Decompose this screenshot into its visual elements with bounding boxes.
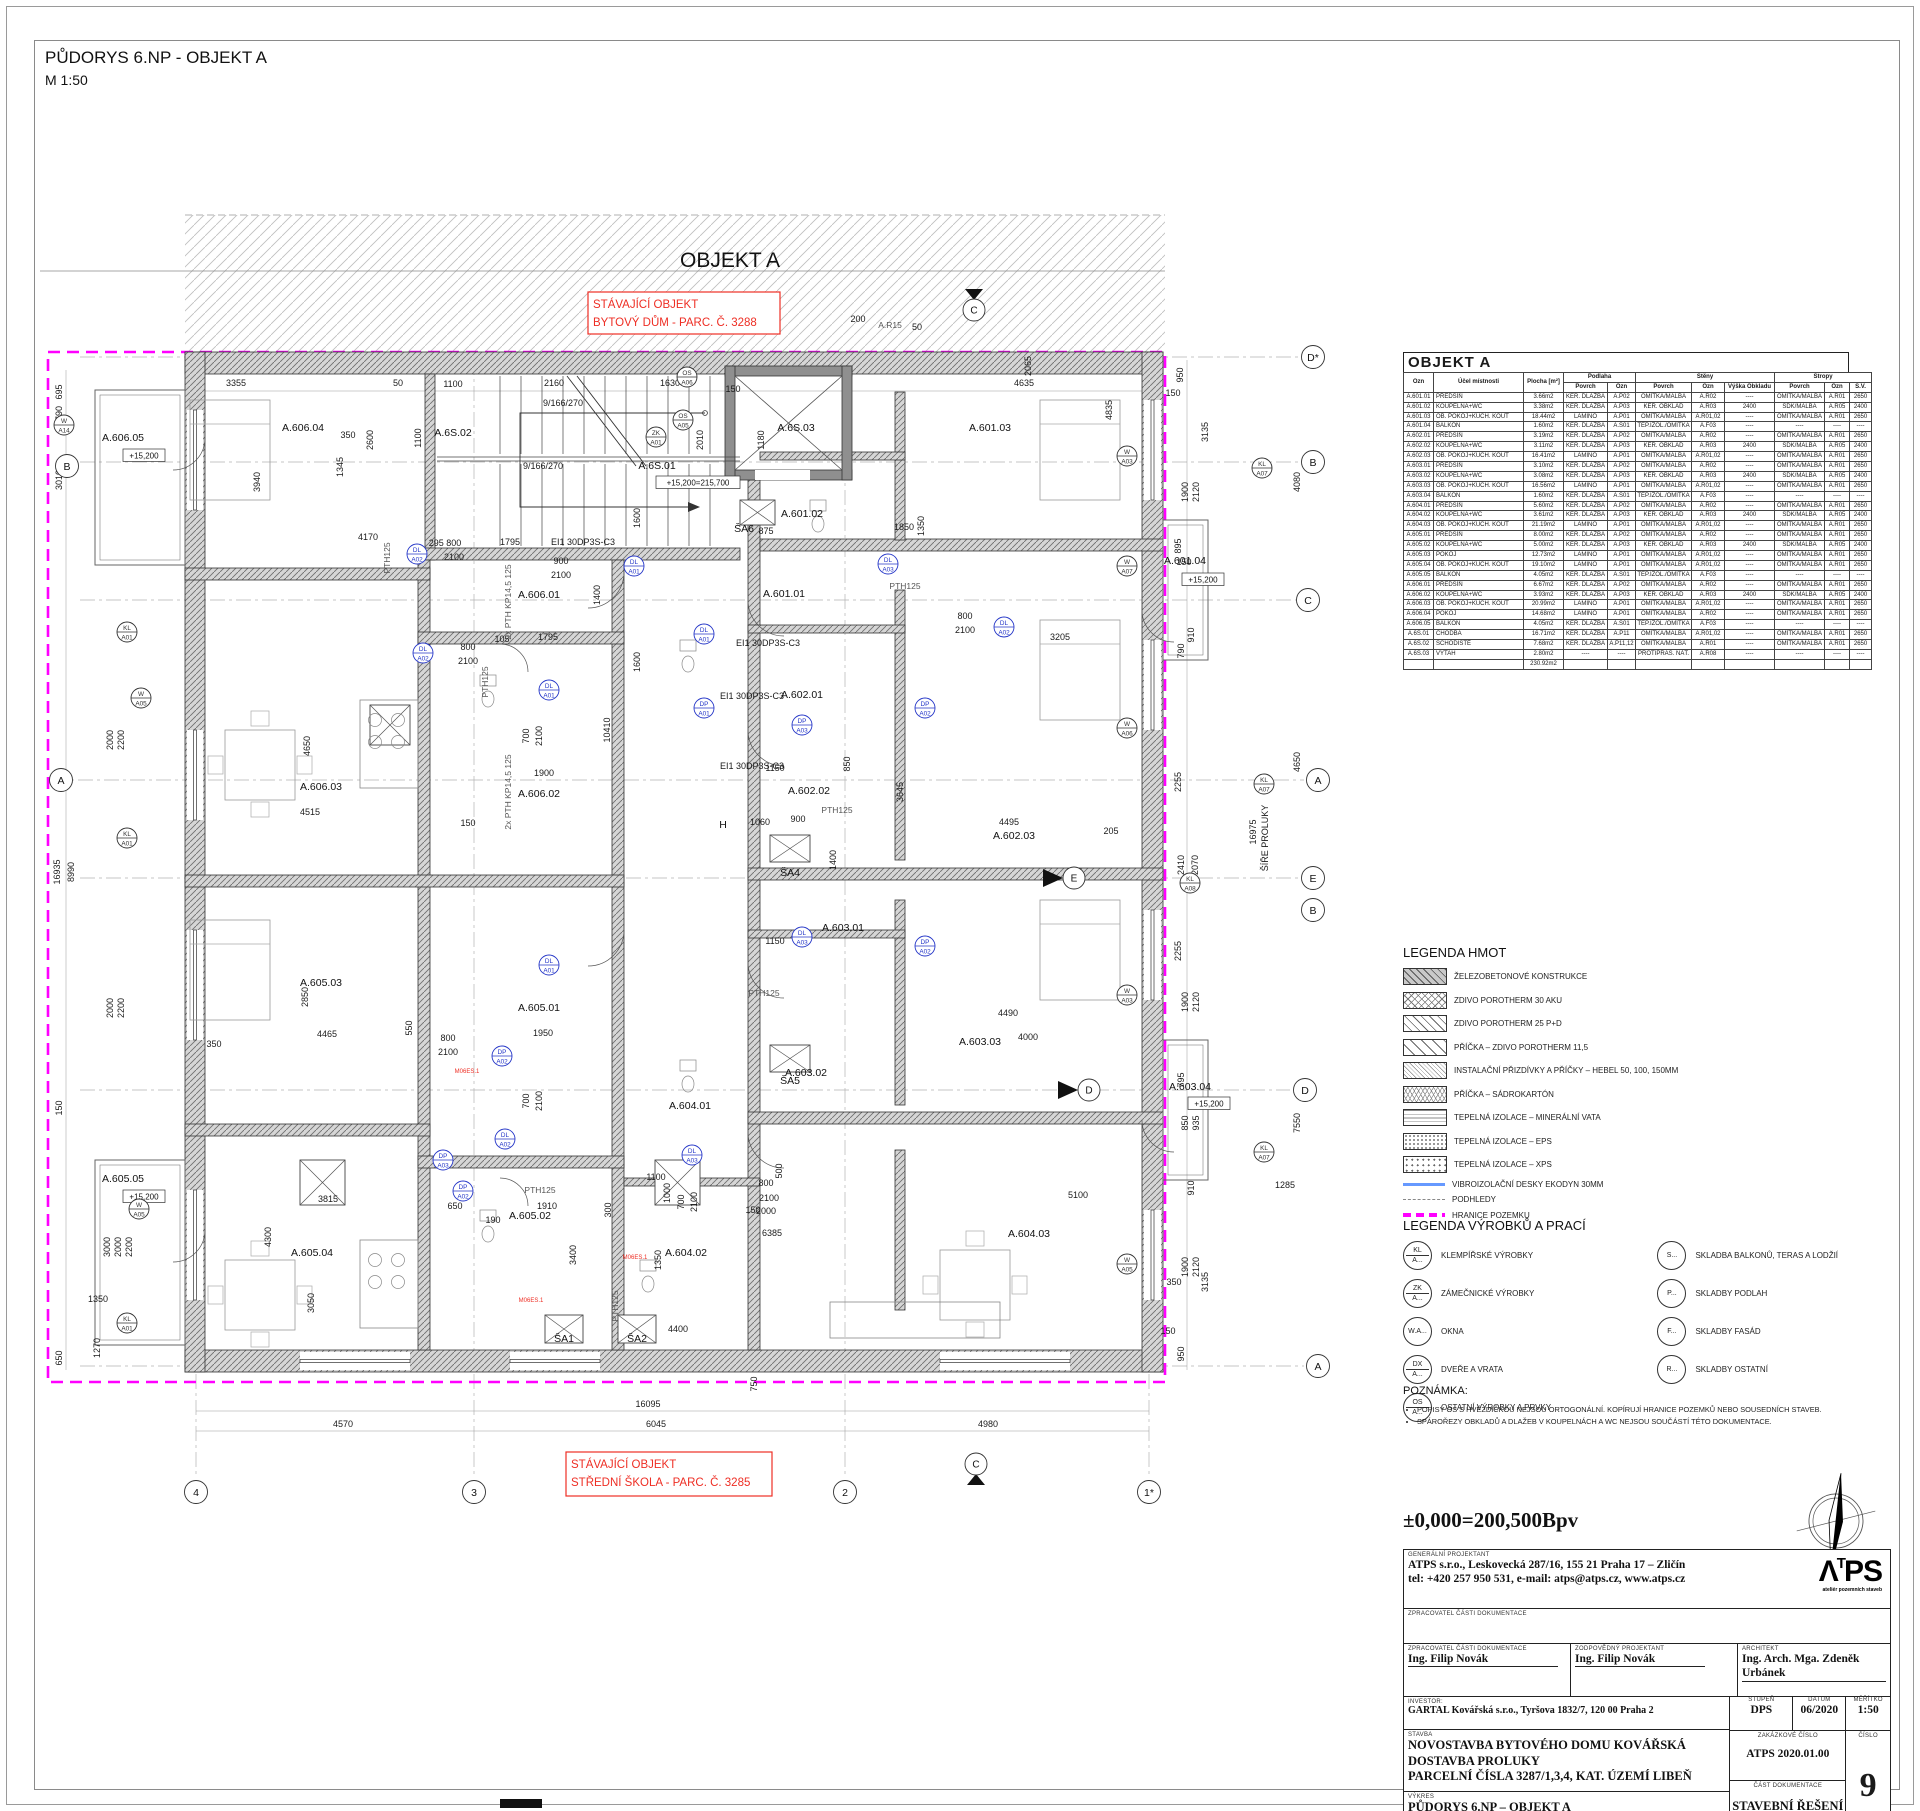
room-label: A.601.04 [1164, 555, 1206, 567]
dim-label: 205 [1103, 826, 1118, 836]
svg-text:DP: DP [921, 701, 930, 708]
svg-text:A03: A03 [1121, 458, 1133, 465]
room-label: A.606.01 [518, 589, 560, 601]
room-label: A.602.01 [781, 689, 823, 701]
svg-text:A03: A03 [882, 566, 894, 573]
table-row: A.605.01PŘEDSÍŇ8.00m2KER. DLAŽBAA.P02OMÍ… [1404, 531, 1872, 541]
grid-bubble-B: B [1302, 899, 1325, 922]
dim-label: 2100 [534, 1091, 544, 1111]
dim-label: 7550 [1292, 1113, 1302, 1133]
product-marker: WA03 [1117, 446, 1137, 466]
svg-text:KL: KL [1260, 1145, 1268, 1152]
plan-text: 2x PTH KP14,5 125 [503, 754, 513, 829]
dim-label: 150 [460, 818, 475, 828]
product-marker: OSA05 [673, 410, 693, 430]
plan-text: A.R15 [878, 320, 902, 330]
dim-label: 800 [758, 1178, 773, 1188]
legend-item: PODHLEDY [1403, 1195, 1903, 1204]
responsible-designer-value: Ing. Filip Novák [1575, 1652, 1705, 1667]
dim-label: 2100 [689, 1192, 699, 1212]
dim-label: 2100 [438, 1047, 458, 1057]
dimension-chains [66, 360, 1187, 1431]
dim-label: 1350 [916, 516, 926, 536]
svg-text:DL: DL [545, 958, 554, 965]
svg-text:A07: A07 [1256, 470, 1268, 477]
marker-symbol-icon: R... [1657, 1355, 1686, 1384]
dim-label: 2160 [544, 378, 564, 388]
svg-text:A02: A02 [919, 948, 931, 955]
table-row: A.601.02KOUPELNA+WC3.38m2KER. DLAŽBAA.P0… [1404, 402, 1872, 412]
dim-label: 1150 [765, 936, 784, 946]
dim-label: 3940 [252, 472, 262, 492]
section-arrows: CCED [963, 289, 1100, 1485]
grid-bubble-3: 3 [463, 1481, 486, 1504]
note-bullet: POPISY OS S HVĚZDIČKOU NEJSOU ORTOGONÁLN… [1417, 1405, 1908, 1414]
svg-text:A01: A01 [543, 967, 555, 974]
col-ucel: Účel místnosti [1434, 373, 1524, 393]
plan-text: PTH125 [889, 581, 920, 591]
dim-label: 9/166/270 [543, 398, 583, 408]
project-line1: NOVOSTAVBA BYTOVÉHO DOMU KOVÁŘSKÁ [1408, 1738, 1725, 1754]
room-label: A.604.02 [665, 1247, 707, 1259]
room-label: ŠA4 [780, 866, 800, 879]
svg-text:DL: DL [798, 930, 807, 937]
legend-item: ZDIVO POROTHERM 30 AKU [1403, 992, 1903, 1009]
svg-text:A03: A03 [796, 939, 808, 946]
dim-label: 1000 [662, 1183, 672, 1203]
order-number-value: ATPS 2020.01.00 [1730, 1747, 1845, 1761]
room-label: A.6S.01 [638, 460, 676, 472]
svg-text:W: W [138, 691, 145, 698]
svg-text:DL: DL [545, 683, 554, 690]
door-marker: DPA02 [915, 698, 935, 718]
svg-text:A05: A05 [1121, 1266, 1133, 1273]
svg-text:A07: A07 [1258, 786, 1270, 793]
svg-text:A06: A06 [681, 379, 693, 386]
dim-label: EI1 30DP3S-C3 [720, 691, 784, 701]
legend-product-item: R...SKLADBY OSTATNÍ [1657, 1355, 1902, 1384]
room-label: A.606.02 [518, 788, 560, 800]
table-row: A.601.01PŘEDSÍŇ3.66m2KER. DLAŽBAA.P02OMÍ… [1404, 392, 1872, 402]
sw-eps-swatch [1403, 1133, 1447, 1150]
note-block: POZNÁMKA: POPISY OS S HVĚZDIČKOU NEJSOU … [1403, 1385, 1908, 1429]
legend-item: TEPELNÁ IZOLACE – XPS [1403, 1156, 1903, 1173]
svg-text:A02: A02 [457, 1193, 469, 1200]
room-label: ŠA1 [554, 1332, 574, 1345]
marker-symbol-icon: S... [1657, 1241, 1686, 1270]
dim-label: 1600 [632, 508, 642, 528]
dim-label: 350 [1166, 1277, 1181, 1287]
room-label: A.603.01 [822, 922, 864, 934]
svg-text:OS: OS [678, 413, 687, 420]
grid-bubble-1: 1* [1138, 1481, 1161, 1504]
door-marker: DPA02 [915, 936, 935, 956]
sw-vata-swatch [1403, 1109, 1447, 1126]
room-label: A.6S.03 [777, 422, 815, 434]
svg-text:DL: DL [688, 1148, 697, 1155]
dim-label: 150 [1165, 388, 1180, 398]
dim-label: 650 [447, 1201, 462, 1211]
plan-text: M06ES.1 [623, 1255, 648, 1261]
svg-text:A01: A01 [121, 840, 133, 847]
svg-text:OS: OS [682, 370, 691, 377]
room-label: A.605.04 [291, 1247, 333, 1259]
col-stropy: Stropy [1775, 373, 1872, 383]
table-row: A.603.03OB. POKOJ+KUCH. KOUT16.56m2LAMIN… [1404, 481, 1872, 491]
dim-label: 190 [485, 1215, 500, 1225]
dim-label: 2200 [124, 1237, 134, 1257]
product-marker: KLA01 [117, 622, 137, 642]
table-row: A.606.01PŘEDSÍŇ6.67m2KER. DLAŽBAA.P02OMÍ… [1404, 580, 1872, 590]
dim-label: 300 [603, 1202, 613, 1217]
section-arrow-D: D [1058, 1079, 1100, 1101]
doc-section-value: STAVEBNÍ ŘEŠENÍ [1730, 1799, 1845, 1811]
dim-label: 695 [54, 384, 64, 399]
product-marker: WA03 [1117, 985, 1137, 1005]
dim-label: 150 [1160, 1326, 1175, 1336]
dim-label: 4515 [300, 807, 320, 817]
room-label: A.605.02 [509, 1210, 551, 1222]
dim-label: 3135 [1200, 422, 1210, 442]
product-marker: KLA07 [1254, 1142, 1274, 1162]
table-row: A.6S.01CHODBA16.71m2KER. DLAŽBAA.P11OMÍT… [1404, 630, 1872, 640]
svg-text:DL: DL [700, 627, 709, 634]
sheet-number-value: 9 [1846, 1769, 1890, 1803]
plan-text: PTH125 [382, 542, 392, 573]
dim-label: 1900 [534, 768, 554, 778]
sw-lblue-swatch [1403, 1183, 1445, 1186]
legend-materials: LEGENDA HMOT ŽELEZOBETONOVÉ KONSTRUKCEZD… [1403, 945, 1903, 1226]
svg-text:W: W [1124, 449, 1131, 456]
dim-label: 2850 [300, 987, 310, 1007]
datum-level-line: ±0,000=200,500Bpv [1403, 1508, 1578, 1533]
door-marker: DLA02 [413, 643, 433, 663]
dim-label: 3645 [895, 782, 905, 802]
dim-label: 350 [340, 430, 355, 440]
dim-label: 3050 [306, 1293, 316, 1313]
room-label: A.603.04 [1169, 1081, 1211, 1093]
col-podlaha: Podlaha [1564, 373, 1636, 383]
room-label: A.606.04 [282, 422, 324, 434]
product-marker: KLA08 [1180, 873, 1200, 893]
svg-text:A: A [57, 775, 64, 787]
dim-label: 790 [1176, 643, 1186, 658]
room-label: A.601.03 [969, 422, 1011, 434]
dim-label: 6385 [762, 1228, 782, 1238]
dim-label: 4000 [1018, 1032, 1038, 1042]
svg-text:DP: DP [798, 718, 807, 725]
room-label: H [719, 819, 727, 831]
dim-label: 4570 [333, 1419, 353, 1429]
dim-label: 2000 [756, 1206, 776, 1216]
svg-text:DP: DP [439, 1153, 448, 1160]
svg-text:A07: A07 [1121, 568, 1133, 575]
dim-label: 1345 [335, 457, 345, 477]
table-row: A.604.03OB. POKOJ+KUCH. KOUT21.19m2LAMIN… [1404, 521, 1872, 531]
dim-label: 2120 [1191, 992, 1201, 1012]
property-boundary [48, 352, 1165, 1382]
marker-symbol-icon: KLA... [1403, 1241, 1432, 1270]
dim-label: 2065 [1023, 356, 1033, 376]
svg-text:DL: DL [1000, 620, 1009, 627]
marker-symbol-icon: P... [1657, 1279, 1686, 1308]
table-row: A.605.04OB. POKOJ+KUCH. KOUT19.10m2LAMIN… [1404, 560, 1872, 570]
product-marker: WA07 [1117, 556, 1137, 576]
dim-label: 3205 [1050, 632, 1070, 642]
doc-part-author-label: ZPRACOVATEL ČÁSTI DOKUMENTACE [1408, 1611, 1886, 1617]
dim-label: 1795 [538, 632, 558, 642]
svg-text:W: W [136, 1202, 143, 1209]
svg-text:A05: A05 [133, 1211, 145, 1218]
legend-product-item: KLA...KLEMPÍŘSKÉ VÝROBKY [1403, 1241, 1653, 1270]
dim-label: 5100 [1068, 1190, 1088, 1200]
table-row: A.601.03OB. POKOJ+KUCH. KOUT18.44m2LAMIN… [1404, 412, 1872, 422]
grid-bubble-2: 2 [834, 1481, 857, 1504]
project-line3: PARCELNÍ ČÍSLA 3287/1,3,4, KAT. ÚZEMÍ LI… [1408, 1769, 1725, 1785]
svg-text:DP: DP [498, 1049, 507, 1056]
atps-logo: ΛTPS ateliér pozemních staveb [1819, 1556, 1882, 1593]
sw-sdk-swatch [1403, 1086, 1447, 1103]
svg-text:DL: DL [413, 547, 422, 554]
plan-text: M06ES.1 [455, 1069, 480, 1075]
dim-label: 4835 [1104, 400, 1114, 420]
dim-label: 10410 [602, 717, 612, 742]
dim-label: 2255 [1173, 772, 1183, 792]
svg-text:B: B [1309, 457, 1316, 469]
dim-label: 4465 [317, 1029, 337, 1039]
dim-label: 850 [1180, 1115, 1190, 1130]
product-marker: OSA06 [677, 367, 697, 387]
dim-label: 1900 [1180, 1257, 1190, 1277]
room-label: ŠA6 [734, 522, 754, 535]
svg-text:A: A [1314, 1361, 1321, 1373]
legend-product-item: S...SKLADBA BALKONŮ, TERAS A LODŽIÍ [1657, 1241, 1902, 1270]
legend-product-item: DXA...DVEŘE A VRATA [1403, 1355, 1653, 1384]
dim-label: 4980 [978, 1419, 998, 1429]
svg-text:D: D [1301, 1085, 1309, 1097]
plan-text: PTH125 [480, 666, 490, 697]
plan-text: PTH125 [524, 1185, 555, 1195]
svg-text:A03: A03 [437, 1162, 449, 1169]
balconies [95, 390, 1208, 1345]
svg-text:C: C [1304, 595, 1312, 607]
room-table-title: OBJEKT A [1403, 352, 1849, 372]
svg-text:A07: A07 [1258, 1154, 1270, 1161]
svg-text:D*: D* [1307, 352, 1319, 364]
plan-text: 2x PTH KP14,5 125 [503, 564, 513, 639]
svg-text:DL: DL [501, 1132, 510, 1139]
product-marker: WA14 [54, 415, 74, 435]
dim-label: 1100 [443, 379, 462, 389]
dim-label: 150 [725, 384, 740, 394]
dim-label: 1100 [413, 428, 423, 447]
dim-label: 900 [790, 814, 805, 824]
room-label: A.603.03 [959, 1036, 1001, 1048]
dim-label: 350 [206, 1039, 221, 1049]
dim-label: 4635 [1014, 378, 1034, 388]
dim-label: 800 [460, 642, 475, 652]
grid-bubble-4: 4 [185, 1481, 208, 1504]
dim-label: 2255 [1173, 941, 1183, 961]
door-marker: DLA03 [792, 927, 812, 947]
level-mark: +15,200 [1188, 576, 1218, 585]
grid-bubble-B: B [56, 455, 79, 478]
sw-lmag-swatch [1403, 1213, 1445, 1217]
dim-label: 3400 [568, 1245, 578, 1265]
legend-materials-title: LEGENDA HMOT [1403, 945, 1903, 960]
red-annotation-text: STÁVAJÍCÍ OBJEKT [593, 298, 698, 311]
dim-label: 1350 [653, 1250, 663, 1270]
door-marker: DLA01 [539, 955, 559, 975]
title-block: GENERÁLNÍ PROJEKTANT ATPS s.r.o., Leskov… [1403, 1549, 1891, 1811]
svg-text:W: W [61, 418, 68, 425]
dim-label: 910 [1186, 627, 1196, 642]
svg-text:E: E [1071, 874, 1078, 885]
dim-label: 16935 [52, 859, 62, 884]
svg-text:4: 4 [193, 1487, 199, 1499]
product-marker: KLA07 [1252, 458, 1272, 478]
room-label: A.6S.02 [434, 427, 472, 439]
dim-label: 2010 [695, 430, 705, 450]
grid-bubble-A: A [1307, 769, 1330, 792]
door-marker: DLA02 [994, 617, 1014, 637]
scale-value: 1:50 [1846, 1703, 1890, 1717]
product-marker: WA06 [1117, 718, 1137, 738]
svg-text:E: E [1309, 873, 1316, 885]
svg-text:KL: KL [123, 625, 131, 632]
svg-text:A08: A08 [1184, 885, 1196, 892]
table-row: A.605.05BALKON4.05m2KER. DLAŽBAA.S01TEP.… [1404, 570, 1872, 580]
dim-label: 2000 [105, 998, 115, 1018]
note-bullet: SPÁROŘEZY OBKLADŮ A DLAŽEB V KOUPELNÁCH … [1417, 1417, 1908, 1426]
room-label: ŠA5 [780, 1074, 800, 1087]
table-row: A.604.01PŘEDSÍŇ5.60m2KER. DLAŽBAA.P02OMÍ… [1404, 501, 1872, 511]
svg-text:A03: A03 [796, 727, 808, 734]
level-mark: +15,200 [1194, 1100, 1224, 1109]
dim-label: 2410 [1176, 855, 1186, 875]
general-designer-line1: ATPS s.r.o., Leskovecká 287/16, 155 21 P… [1408, 1558, 1886, 1572]
section-arrow-C: C [965, 1453, 987, 1485]
dim-label: 3000 [102, 1237, 112, 1257]
sw-zb-swatch [1403, 968, 1447, 985]
svg-text:W: W [1124, 559, 1131, 566]
grid-bubble-A: A [1307, 1355, 1330, 1378]
dim-label: 1400 [828, 850, 838, 870]
plan-object-title: OBJEKT A [680, 249, 780, 272]
svg-text:KL: KL [1260, 777, 1268, 784]
floor-plan: OBJEKT A STÁVAJÍCÍ OBJEKTBYTOVÝ DŮM - PA… [40, 170, 1330, 1530]
dim-label: 800 [957, 611, 972, 621]
svg-text:A14: A14 [58, 427, 70, 434]
walls [185, 352, 1163, 1372]
col-plocha: Plocha [m²] [1524, 373, 1564, 393]
product-marker: WA05 [131, 688, 151, 708]
dim-label: 950 [1175, 367, 1185, 382]
dim-label: 2100 [534, 726, 544, 746]
marker-symbol-icon: W.A... [1403, 1317, 1432, 1346]
red-annotation-text: STŘEDNÍ ŠKOLA - PARC. Č. 3285 [571, 1476, 750, 1489]
dim-label: 2120 [1191, 1257, 1201, 1277]
dim-label: 2100 [458, 656, 478, 666]
dim-label: 700 [676, 1194, 686, 1209]
sw-p30-swatch [1403, 992, 1447, 1009]
sw-p25-swatch [1403, 1015, 1447, 1032]
svg-text:DL: DL [884, 557, 893, 564]
product-marker: WA05 [129, 1199, 149, 1219]
svg-text:W: W [1124, 988, 1131, 995]
dim-label: 4650 [1292, 752, 1302, 772]
svg-text:DP: DP [459, 1184, 468, 1191]
svg-text:A03: A03 [686, 1157, 698, 1164]
dim-label: 1900 [1180, 482, 1190, 502]
dim-label: ŠÍŘE PROLUKY [1260, 805, 1270, 872]
drawing-sheet: PŮDORYS 6.NP - OBJEKT A M 1:50 [0, 0, 1920, 1811]
table-row: A.604.02KOUPELNA+WC3.61m2KER. DLAŽBAA.P0… [1404, 511, 1872, 521]
dim-label: 895 [1173, 538, 1183, 553]
dim-label: 3815 [318, 1194, 338, 1204]
svg-text:2: 2 [842, 1487, 848, 1499]
svg-text:1*: 1* [1144, 1487, 1154, 1499]
legend-product-item: P...SKLADBY PODLAH [1657, 1279, 1902, 1308]
page-title: PŮDORYS 6.NP - OBJEKT A [45, 48, 267, 68]
marker-symbol-icon: ZKA... [1403, 1279, 1432, 1308]
dim-label: 1150 [765, 763, 784, 773]
plan-text: M06ES.1 [519, 1298, 544, 1304]
legend-item: VIBROIZOLAČNÍ DESKY EKODYN 30MM [1403, 1180, 1903, 1189]
legend-product-item: W.A...OKNA [1403, 1317, 1653, 1346]
svg-text:D: D [1085, 1086, 1092, 1097]
dim-label: 295 800 [429, 538, 462, 548]
svg-text:A05: A05 [677, 422, 689, 429]
dim-label: 50 [393, 378, 403, 388]
door-marker: DLA02 [495, 1129, 515, 1149]
plan-text: PTH125 [821, 805, 852, 815]
dim-label: 1350 [88, 1294, 108, 1304]
svg-text:A06: A06 [1121, 730, 1133, 737]
dim-label: 4650 [302, 736, 312, 756]
dim-label: 150 [54, 1100, 64, 1115]
dim-label: 2000 [113, 1237, 123, 1257]
dim-label: 550 [404, 1020, 414, 1035]
legend-products-title: LEGENDA VÝROBKŮ A PRACÍ [1403, 1218, 1908, 1233]
product-marker: KLA01 [117, 1313, 137, 1333]
dim-label: 2100 [444, 552, 464, 562]
col-steny: Stěny [1636, 373, 1775, 383]
architect-value: Ing. Arch. Mga. Zdeněk Urbánek [1742, 1652, 1886, 1682]
dim-label: 1285 [1275, 1180, 1295, 1190]
dim-label: 1600 [632, 652, 642, 672]
dim-label: 1180 [756, 430, 766, 449]
general-designer-line2: tel: +420 257 950 531, e-mail: atps@atps… [1408, 1572, 1886, 1586]
room-label: A.604.01 [669, 1100, 711, 1112]
dim-label: 6045 [646, 1419, 666, 1429]
legend-item: ŽELEZOBETONOVÉ KONSTRUKCE [1403, 968, 1903, 985]
grid-bubble-E: E [1302, 867, 1325, 890]
grid-bubble-C: C [1297, 589, 1320, 612]
table-row: A.605.02KOUPELNA+WC5.00m2KER. DLAŽBAA.P0… [1404, 541, 1872, 551]
svg-text:KL: KL [1186, 876, 1194, 883]
table-row: A.602.02KOUPELNA+WC3.11m2KER. DLAŽBAA.P0… [1404, 442, 1872, 452]
dim-label: 850 [842, 756, 852, 771]
svg-text:C: C [972, 1460, 979, 1471]
sheet-fold-mark [500, 1799, 542, 1808]
dim-label: 9/166/270 [523, 461, 563, 471]
room-label: A.605.01 [518, 1002, 560, 1014]
door-marker: DLA02 [407, 544, 427, 564]
svg-text:A01: A01 [628, 568, 640, 575]
dim-label: 800 [440, 1033, 455, 1043]
table-row: A.603.04BALKON1.60m2KER. DLAŽBAA.S01TEP.… [1404, 491, 1872, 501]
